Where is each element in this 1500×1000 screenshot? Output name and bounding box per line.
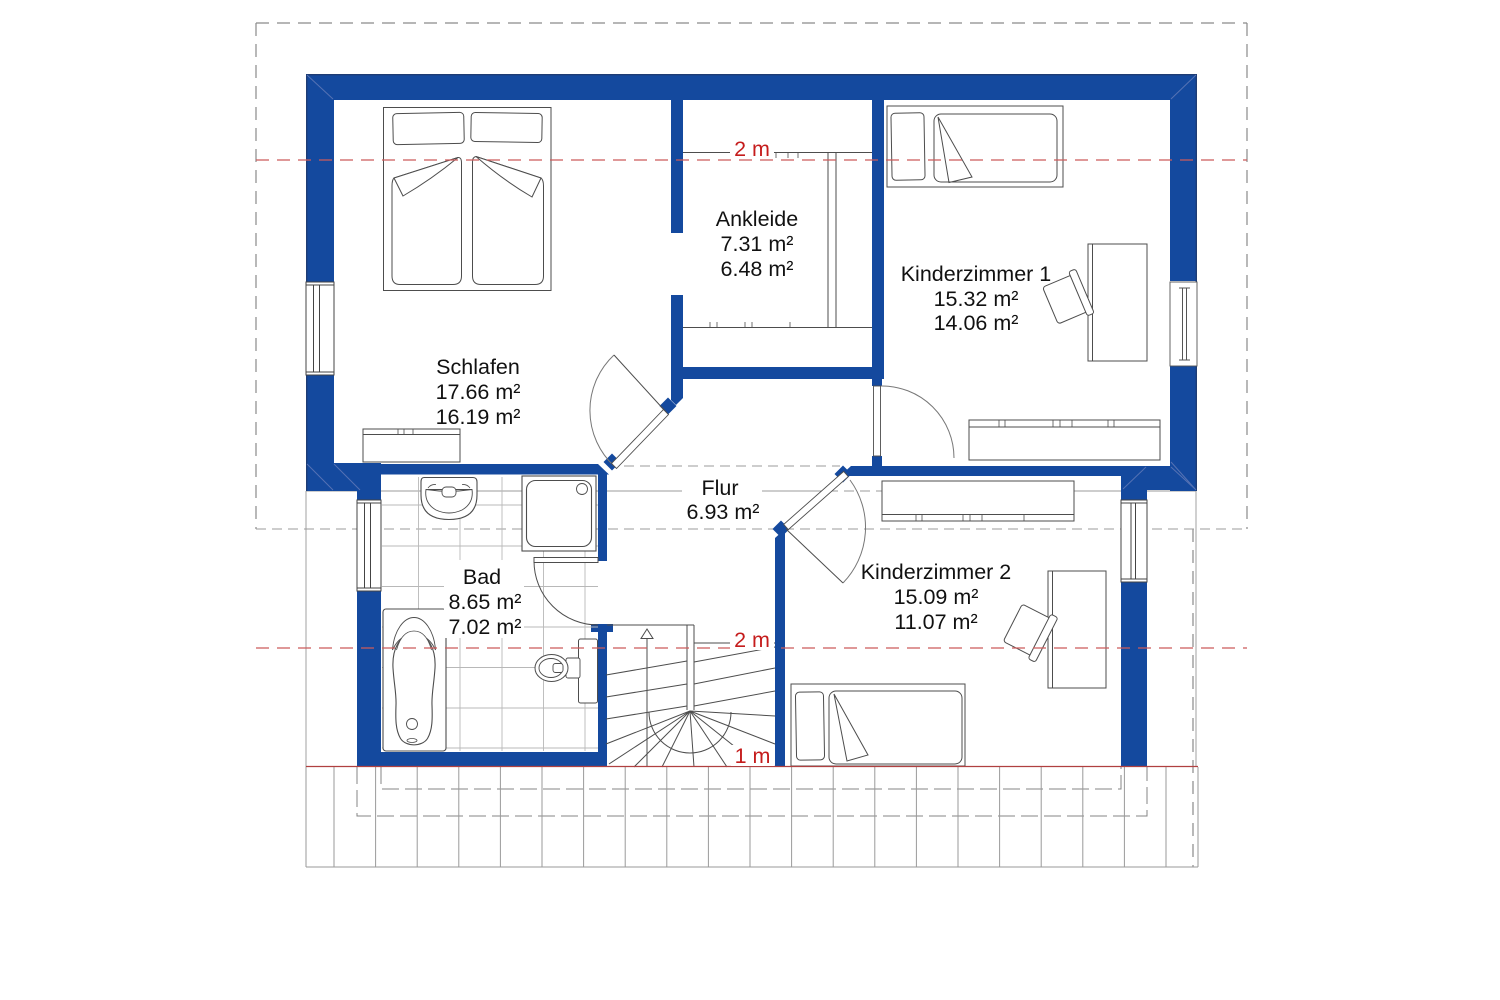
svg-text:7.02 m²: 7.02 m² [449, 615, 522, 639]
svg-text:2 m: 2 m [734, 628, 770, 652]
svg-text:6.93 m²: 6.93 m² [687, 500, 760, 524]
svg-text:Kinderzimmer 2: Kinderzimmer 2 [861, 560, 1012, 584]
svg-text:Schlafen: Schlafen [436, 355, 520, 379]
svg-text:15.09 m²: 15.09 m² [894, 585, 979, 609]
svg-text:16.19 m²: 16.19 m² [436, 405, 521, 429]
svg-text:6.48 m²: 6.48 m² [721, 257, 794, 281]
svg-text:17.66 m²: 17.66 m² [436, 380, 521, 404]
svg-text:14.06 m²: 14.06 m² [934, 311, 1019, 335]
svg-text:Kinderzimmer 1: Kinderzimmer 1 [901, 262, 1052, 286]
svg-text:8.65 m²: 8.65 m² [449, 590, 522, 614]
svg-text:2 m: 2 m [734, 137, 770, 161]
svg-text:1 m: 1 m [735, 744, 771, 768]
svg-text:Bad: Bad [463, 565, 501, 589]
svg-text:Ankleide: Ankleide [716, 207, 798, 231]
svg-text:15.32 m²: 15.32 m² [934, 287, 1019, 311]
svg-text:11.07 m²: 11.07 m² [894, 610, 977, 634]
svg-text:7.31 m²: 7.31 m² [721, 232, 794, 256]
svg-text:Flur: Flur [701, 476, 738, 500]
